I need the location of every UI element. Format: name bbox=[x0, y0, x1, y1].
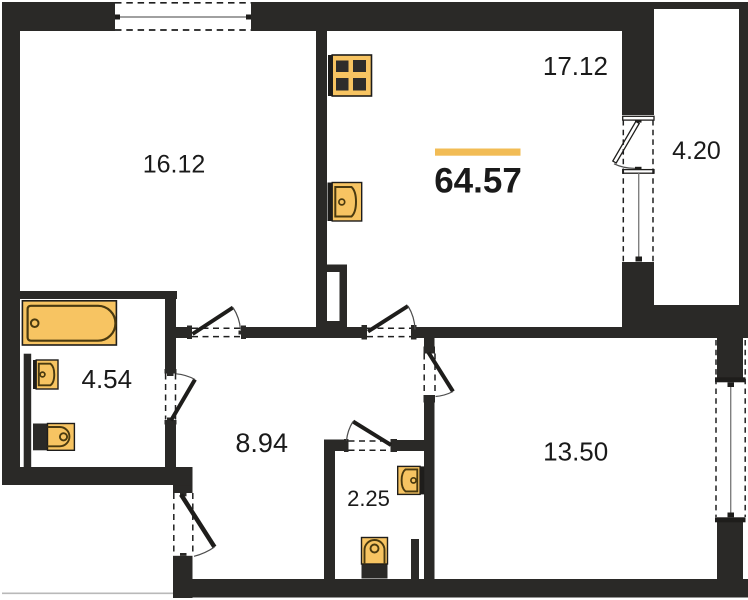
svg-text:2.25: 2.25 bbox=[347, 486, 390, 511]
svg-text:8.94: 8.94 bbox=[235, 428, 288, 458]
svg-text:64.57: 64.57 bbox=[434, 162, 522, 201]
svg-text:4.20: 4.20 bbox=[672, 137, 721, 165]
svg-text:4.54: 4.54 bbox=[81, 364, 132, 394]
svg-text:16.12: 16.12 bbox=[143, 150, 206, 178]
svg-text:13.50: 13.50 bbox=[543, 436, 608, 466]
svg-text:17.12: 17.12 bbox=[543, 51, 608, 81]
